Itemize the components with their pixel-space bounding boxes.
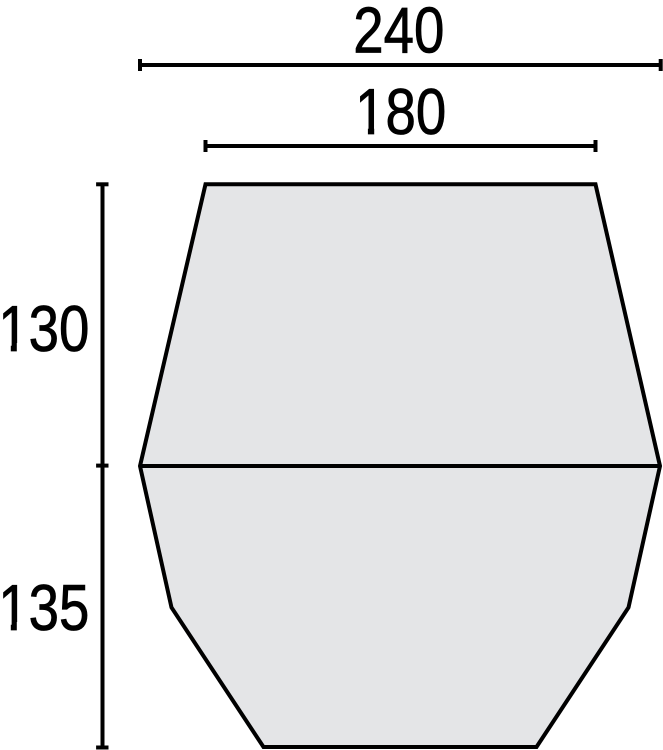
svg-text:240: 240	[353, 0, 444, 67]
svg-text:135: 135	[0, 572, 89, 645]
svg-text:130: 130	[0, 292, 89, 365]
svg-text:180: 180	[355, 76, 446, 149]
